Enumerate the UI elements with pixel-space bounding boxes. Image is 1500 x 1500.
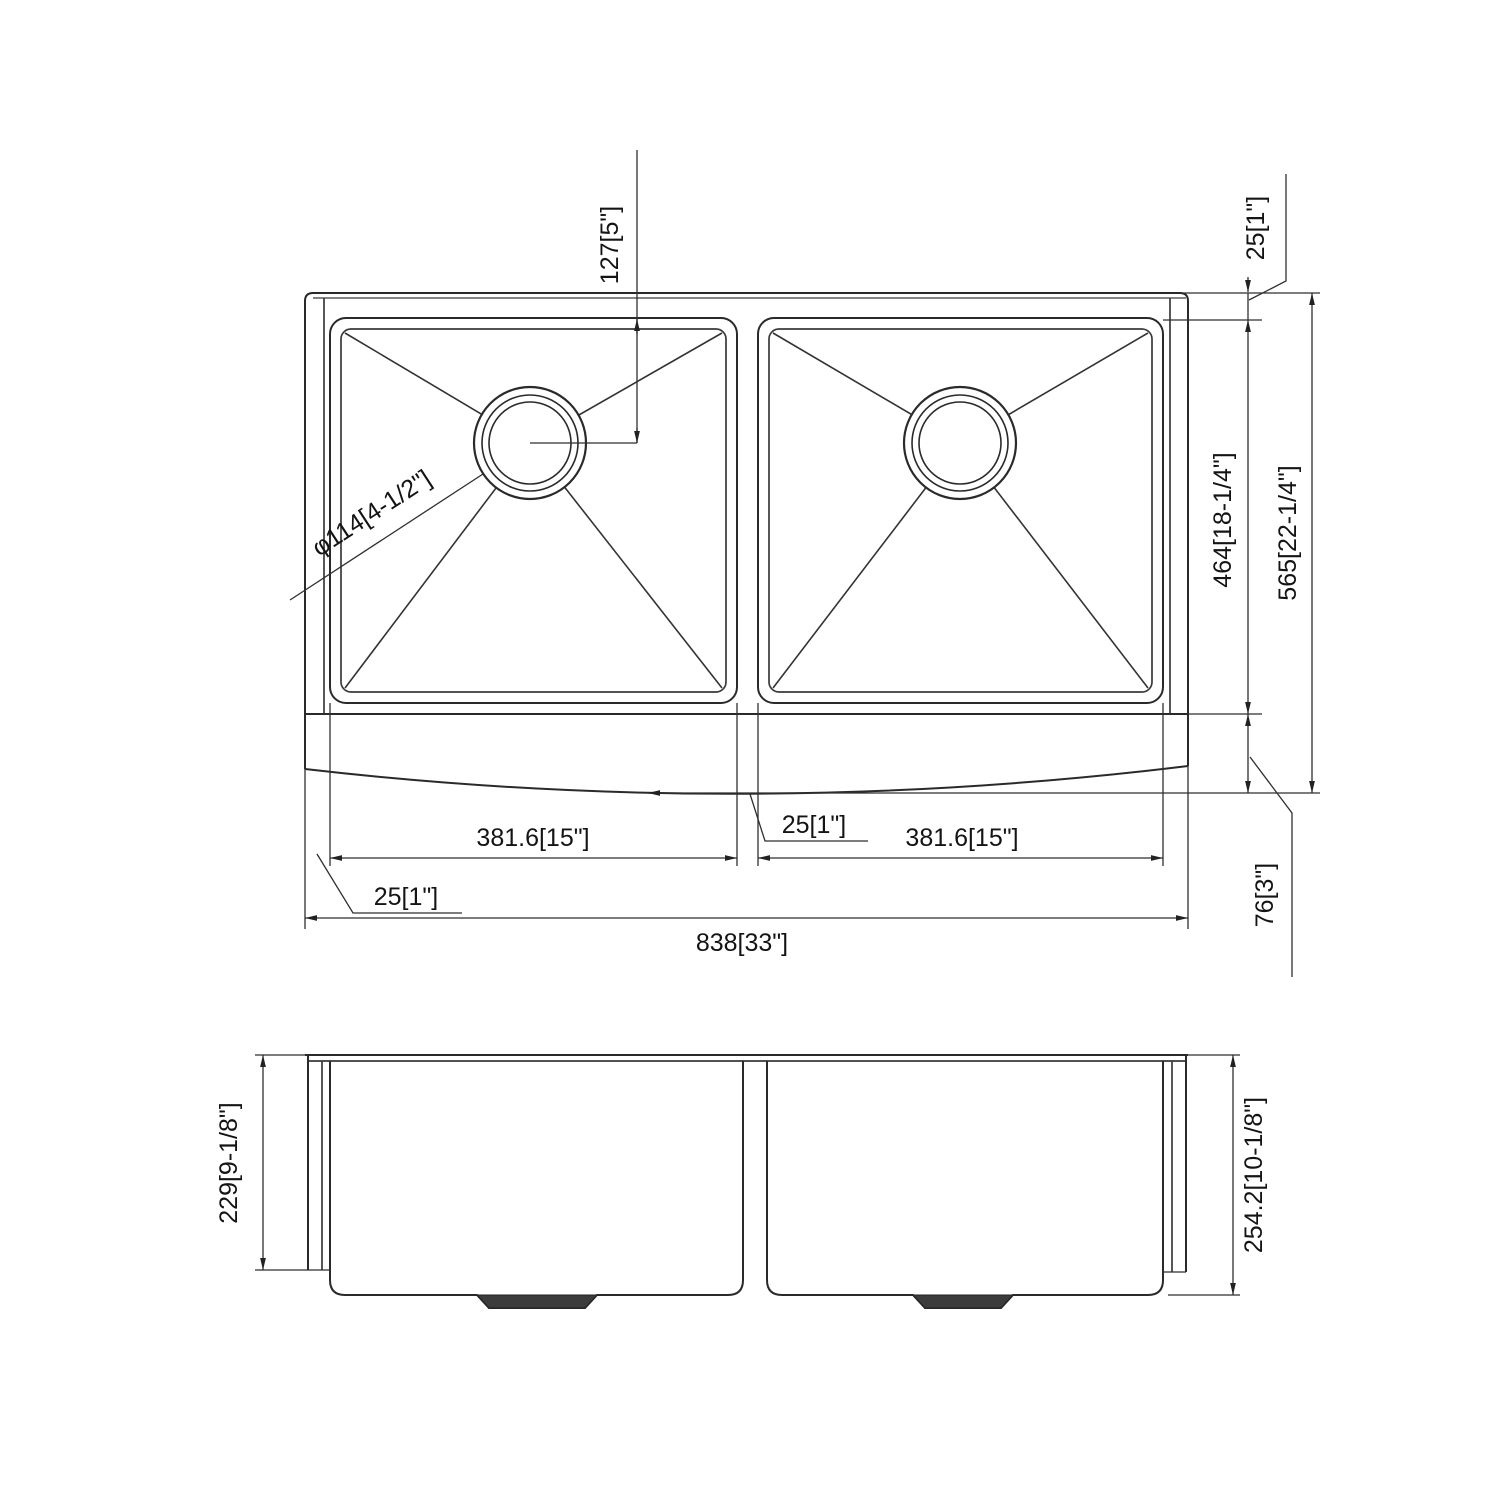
right-bowl — [758, 318, 1163, 703]
dim-bowl-front-to-back: 464[18-1/4"] — [1209, 320, 1248, 714]
dim-bowl-depth-label: 229[9-1/8"] — [215, 1102, 243, 1223]
dim-apron-front-label: 76[3"] — [1251, 863, 1279, 927]
dim-right-bowl-width-label: 381.6[15"] — [905, 824, 1018, 852]
dim-side-rim: 25[1"] — [317, 854, 462, 913]
front-right-bowl-outline — [767, 1061, 1163, 1308]
front-left-bowl-outline — [330, 1061, 743, 1308]
right-drain-fitting — [913, 1295, 1013, 1308]
dim-overall-width: 838[33"] — [305, 918, 1188, 957]
dim-overall-front-to-back-label: 565[22-1/4"] — [1274, 465, 1302, 600]
dim-overall-height-label: 254.2[10-1/8"] — [1240, 1097, 1268, 1253]
front-view-dimensions: 229[9-1/8"] 254.2[10-1/8"] — [215, 1055, 1268, 1295]
dim-side-rim-label: 25[1"] — [374, 883, 438, 911]
top-view: 127[5"] 25[1"] 464[18-1/4"] 565[22-1/4"] — [290, 150, 1320, 977]
dim-bowl-depth: 229[9-1/8"] — [215, 1055, 263, 1270]
dim-center-divider: 25[1"] — [750, 794, 868, 841]
apron-front-curve — [305, 766, 1188, 794]
top-view-dimensions: 127[5"] 25[1"] 464[18-1/4"] 565[22-1/4"] — [290, 150, 1320, 977]
right-drain — [904, 387, 1016, 499]
dim-overall-front-to-back: 565[22-1/4"] — [1274, 293, 1312, 793]
dim-center-divider-label: 25[1"] — [782, 811, 846, 839]
sink-outer-edge — [305, 293, 1188, 769]
front-view-outline — [255, 1055, 1240, 1308]
right-bowl-outer — [758, 318, 1163, 703]
dim-drain-offset-label: 127[5"] — [596, 206, 624, 284]
right-bowl-inner — [769, 329, 1152, 692]
dim-rear-rim: 25[1"] — [1242, 174, 1286, 320]
front-view: 229[9-1/8"] 254.2[10-1/8"] — [215, 1055, 1268, 1308]
dim-drain-diameter: φ114[4-1/2"] — [290, 465, 483, 600]
dim-overall-width-label: 838[33"] — [696, 929, 788, 957]
dim-apron-front: 76[3"] — [1248, 714, 1292, 977]
dim-rear-rim-label: 25[1"] — [1242, 196, 1270, 260]
sink-dimension-drawing: 127[5"] 25[1"] 464[18-1/4"] 565[22-1/4"] — [0, 0, 1500, 1500]
dim-left-bowl-width: 381.6[15"] — [330, 824, 737, 858]
dim-overall-height: 254.2[10-1/8"] — [1233, 1055, 1268, 1295]
dim-left-bowl-width-label: 381.6[15"] — [476, 824, 589, 852]
top-view-outline — [305, 293, 1188, 794]
left-drain-fitting — [477, 1295, 597, 1308]
dim-bowl-front-to-back-label: 464[18-1/4"] — [1209, 452, 1237, 587]
